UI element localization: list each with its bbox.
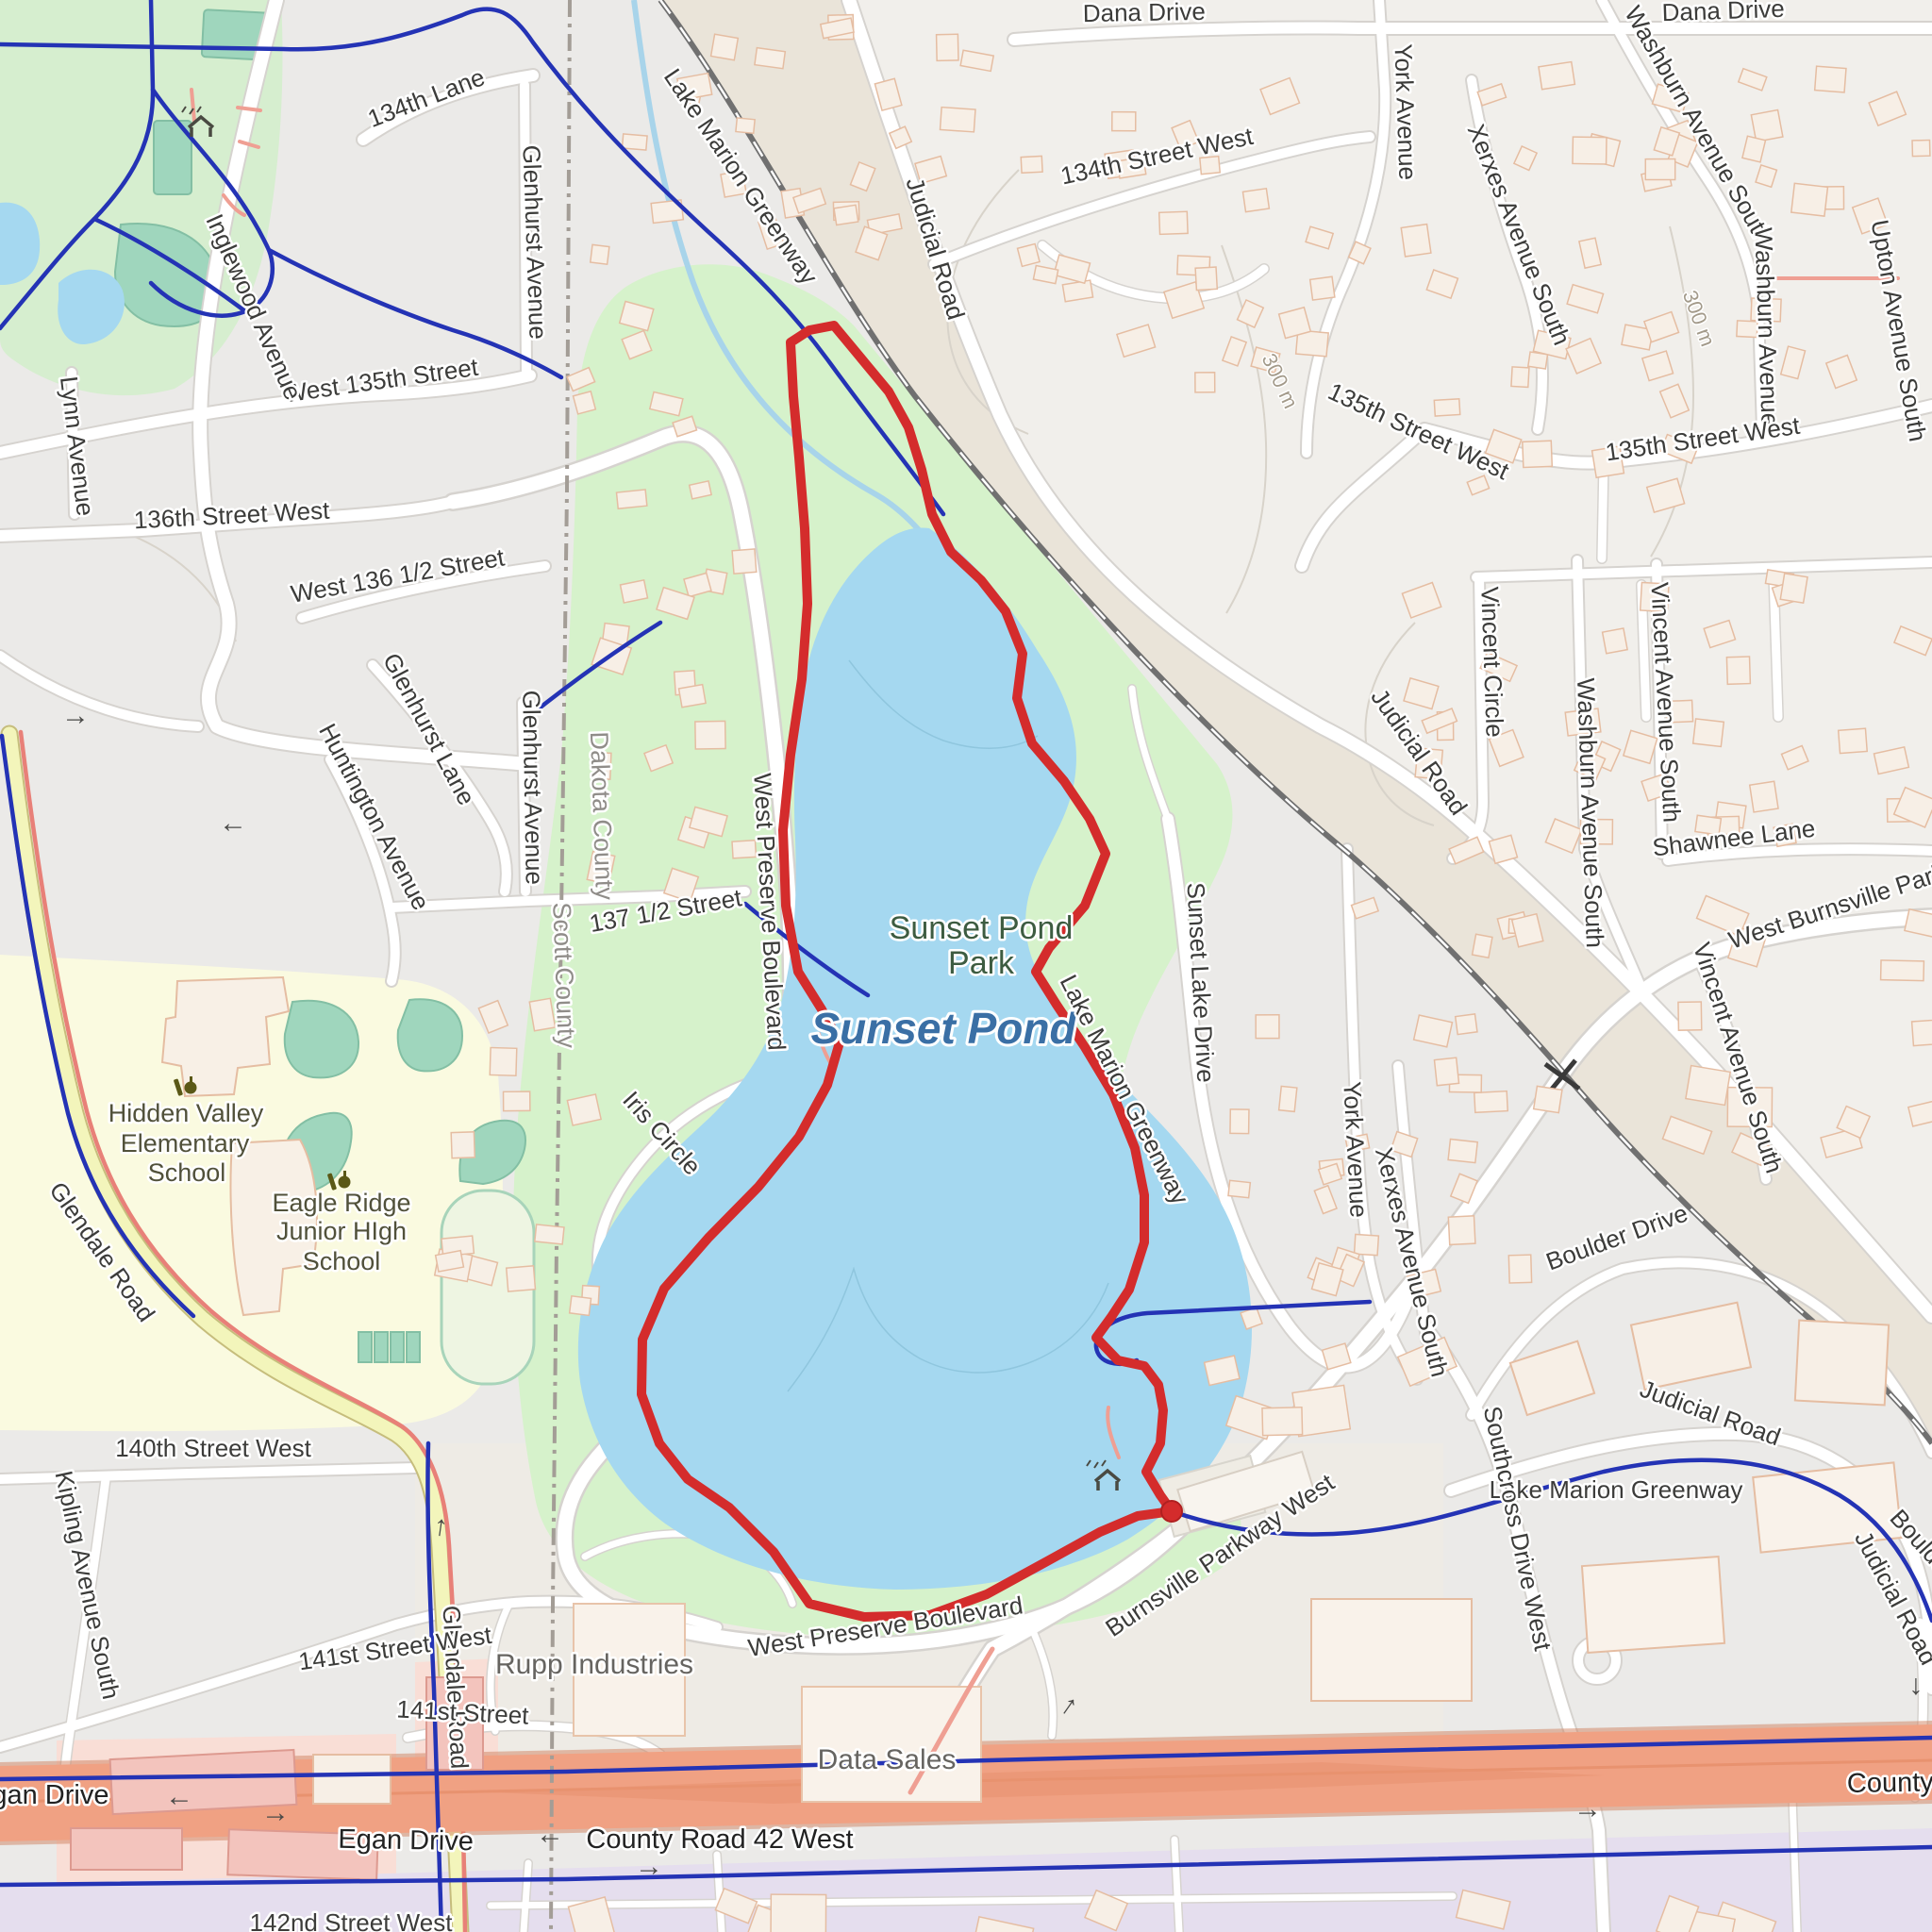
- street-label-york-avenue: York Avenue: [1389, 43, 1422, 181]
- poi-label-sunset-pond-park-1: Sunset Pond: [890, 910, 1074, 946]
- street-label-egan-drive: Egan Drive: [0, 1780, 108, 1810]
- poi-label-eagle-ridge-3: School: [303, 1247, 381, 1275]
- poi-label-sunset-pond-park-2: Park: [948, 945, 1015, 981]
- street-label-egan-drive: Egan Drive: [338, 1824, 474, 1857]
- street-label-dana-drive: Dana Drive: [1083, 0, 1207, 27]
- oneway-arrow: →: [419, 1511, 454, 1543]
- poi-label-hidden-valley-3: School: [148, 1158, 226, 1187]
- poi-label-eagle-ridge-1: Eagle Ridge: [272, 1189, 410, 1217]
- boundary-label-dakota-county: Dakota County: [585, 731, 619, 901]
- water-label-sunset-pond: Sunset Pond: [810, 1004, 1076, 1053]
- street-label-county-road-42-west: County Road 42 West: [1847, 1764, 1932, 1799]
- oneway-arrow: ←: [165, 1781, 193, 1812]
- oneway-arrow: →: [61, 700, 90, 731]
- oneway-arrow: ←: [536, 1819, 564, 1850]
- path-label-lake-marion-greenway: Lake Marion Greenway: [1490, 1475, 1743, 1504]
- poi-label-hidden-valley-1: Hidden Valley: [108, 1099, 264, 1127]
- street-label-vincent-circle: Vincent Circle: [1475, 586, 1509, 738]
- street-label-142nd-street-west: 142nd Street West: [250, 1908, 454, 1932]
- oneway-arrow: →: [635, 1851, 663, 1882]
- oneway-arrow: →: [261, 1797, 290, 1828]
- oneway-arrow: ←: [219, 808, 247, 839]
- street-label-county-road-42-west: County Road 42 West: [586, 1824, 853, 1855]
- oneway-arrow: →: [1574, 1793, 1602, 1824]
- street-label-dana-drive: Dana Drive: [1661, 0, 1785, 26]
- poi-label-eagle-ridge-2: Junior HIgh: [276, 1217, 407, 1245]
- street-label-140th-street-west: 140th Street West: [115, 1434, 311, 1462]
- poi-label-data-sales: Data Sales: [818, 1744, 957, 1775]
- boundary-label-scott-county: Scott County: [547, 902, 580, 1049]
- map-canvas[interactable]: ← → ← → → → → → → ← Dana Drive Dana Driv…: [0, 0, 1932, 1932]
- oneway-arrow: →: [1905, 1673, 1932, 1701]
- poi-label-hidden-valley-2: Elementary: [121, 1129, 250, 1158]
- route-end-marker: [1161, 1501, 1182, 1522]
- street-label-glenhurst-avenue: Glenhurst Avenue: [517, 690, 549, 885]
- poi-label-rupp-industries: Rupp Industries: [495, 1649, 693, 1680]
